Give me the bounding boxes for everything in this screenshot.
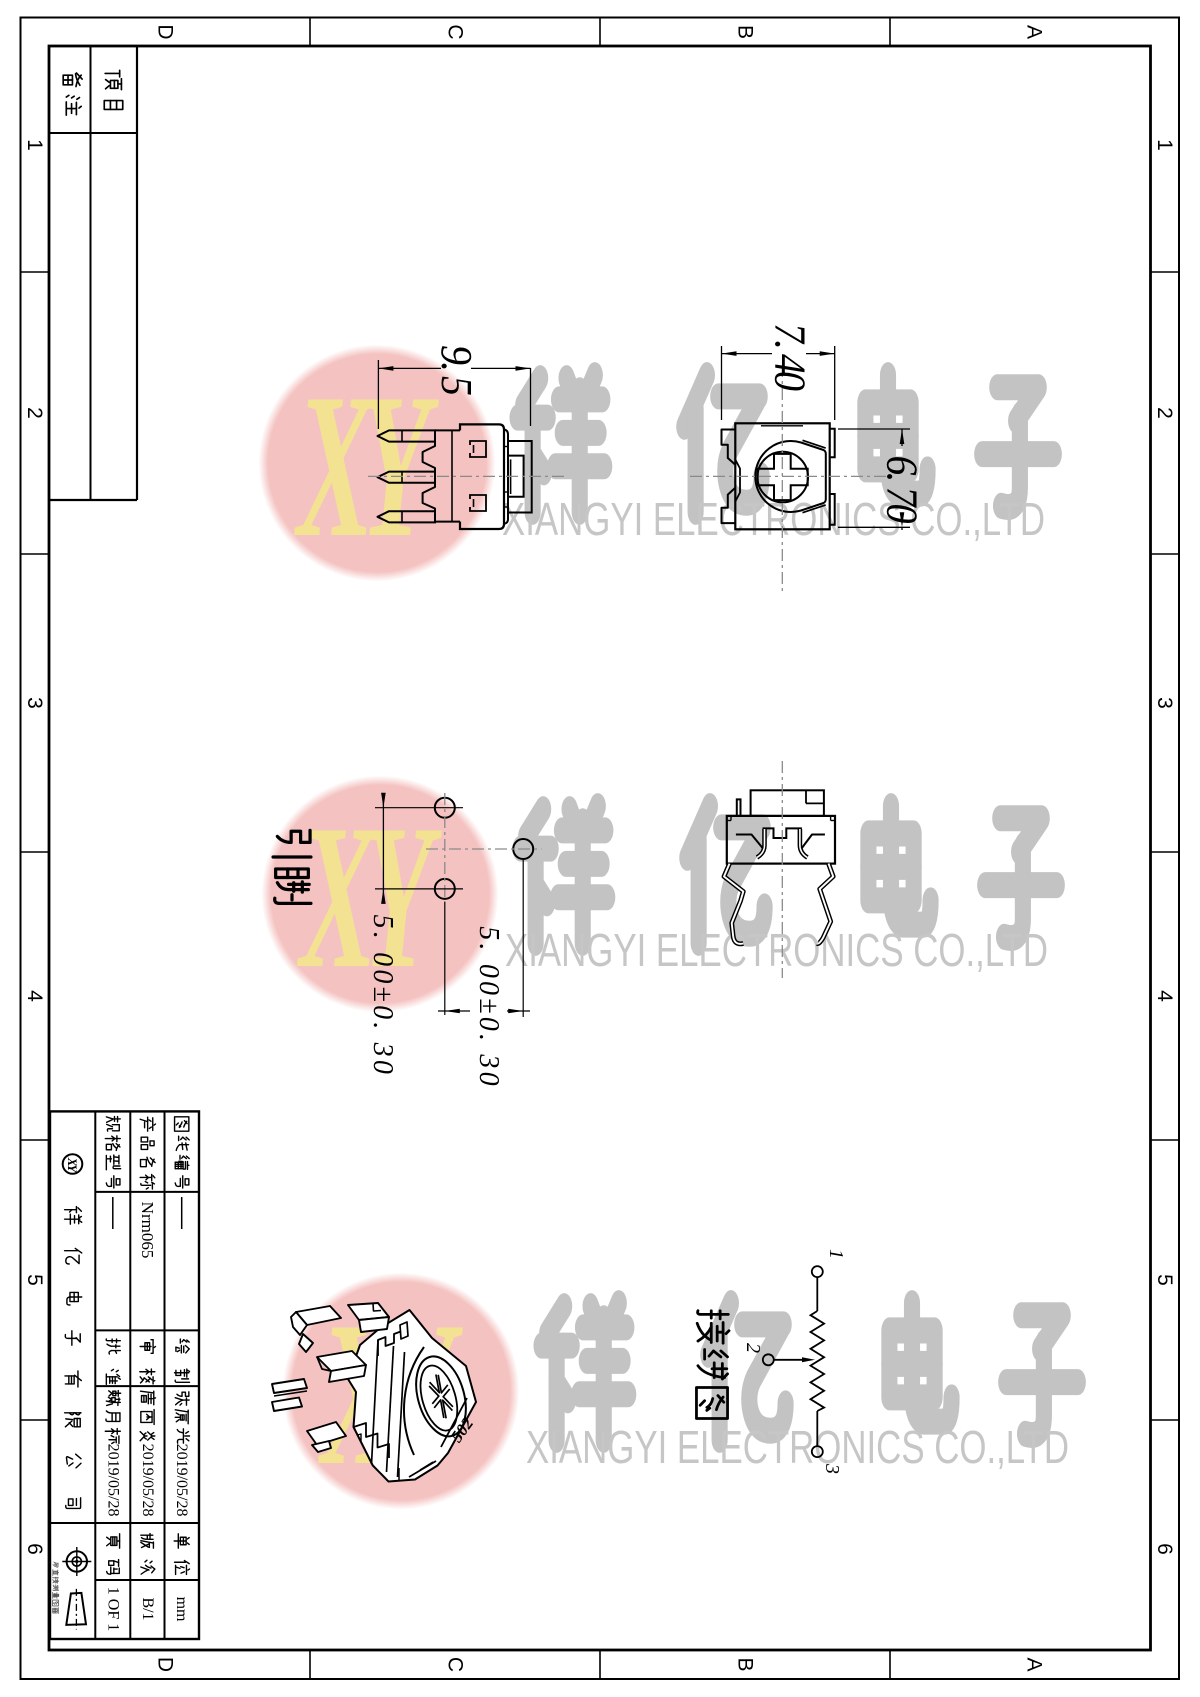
svg-text:3: 3 — [23, 697, 46, 709]
svg-text:4: 4 — [23, 990, 46, 1002]
svg-text:2019/05/28: 2019/05/28 — [173, 1444, 190, 1517]
svg-text:2019/05/28: 2019/05/28 — [139, 1444, 156, 1517]
svg-text:C: C — [444, 1657, 467, 1672]
svg-text:1: 1 — [1153, 139, 1176, 151]
svg-text:A: A — [1023, 1657, 1046, 1671]
svg-text:6: 6 — [23, 1543, 46, 1555]
svg-text:2: 2 — [1153, 407, 1176, 419]
svg-text:5. 00±0. 30: 5. 00±0. 30 — [473, 926, 504, 1089]
svg-text:B/1: B/1 — [139, 1597, 156, 1620]
svg-text:B: B — [734, 1657, 757, 1671]
svg-text:D: D — [154, 24, 177, 39]
svg-text:D: D — [154, 1657, 177, 1672]
svg-text:Nrm065: Nrm065 — [138, 1202, 157, 1259]
svg-text:2: 2 — [23, 407, 46, 419]
svg-text:3: 3 — [1153, 697, 1176, 709]
svg-text:1: 1 — [23, 139, 46, 151]
svg-text:Y: Y — [359, 352, 439, 580]
svg-text:5: 5 — [1153, 1274, 1176, 1286]
svg-text:2: 2 — [742, 1343, 764, 1353]
svg-text:9. 5: 9. 5 — [431, 345, 479, 395]
svg-text:7. 40: 7. 40 — [765, 323, 813, 391]
svg-text:2019/05/28: 2019/05/28 — [104, 1444, 121, 1517]
svg-text:5: 5 — [23, 1274, 46, 1286]
svg-text:5. 00±0. 30: 5. 00±0. 30 — [367, 915, 398, 1078]
svg-text:6. 70: 6. 70 — [877, 456, 925, 524]
svg-text:B: B — [734, 25, 757, 39]
svg-text:A: A — [1023, 25, 1046, 39]
svg-text:6: 6 — [1153, 1543, 1176, 1555]
svg-text:1 OF 1: 1 OF 1 — [104, 1587, 121, 1631]
svg-text:3: 3 — [821, 1463, 843, 1474]
svg-text:4: 4 — [1153, 990, 1176, 1002]
svg-text:1: 1 — [825, 1249, 847, 1259]
svg-text:C: C — [444, 24, 467, 39]
svg-text:mm: mm — [173, 1597, 190, 1622]
svg-text:XIANGYI ELECTRONICS CO.,LTD: XIANGYI ELECTRONICS CO.,LTD — [526, 1421, 1069, 1473]
svg-text:XIANGYI ELECTRONICS CO.,LTD: XIANGYI ELECTRONICS CO.,LTD — [505, 924, 1048, 976]
